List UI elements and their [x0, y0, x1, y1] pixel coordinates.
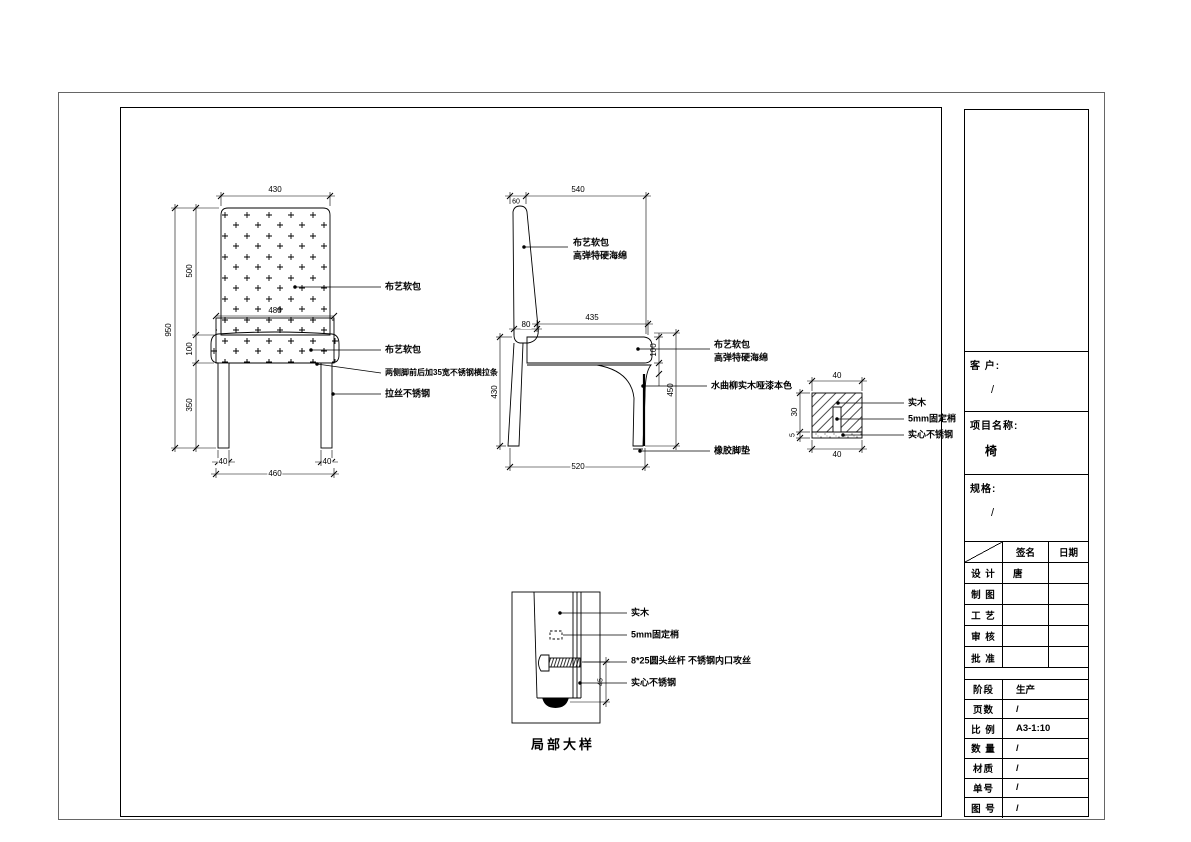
row-draft-date: [1048, 584, 1088, 605]
row-review-sign: [1002, 626, 1048, 647]
quantity-value: /: [1002, 739, 1088, 759]
row-design-label: 设 计: [965, 563, 1002, 584]
label-side-seat-foam: 高弹特硬海绵: [714, 354, 768, 363]
label-front-leg-material: 拉丝不锈钢: [385, 390, 430, 399]
dim-front-base-width: 460: [267, 470, 282, 478]
row-process-label: 工 艺: [965, 605, 1002, 626]
title-block-gap: [965, 667, 1088, 679]
label-side-foot-pad: 橡胶脚垫: [714, 447, 750, 456]
stage-value: 生产: [1002, 680, 1088, 700]
label-detail-steel: 实心不锈钢: [631, 679, 676, 688]
pages-value: /: [1002, 700, 1088, 720]
signature-table-corner: [965, 542, 1002, 563]
dim-side-seat-cushion: 100: [650, 343, 658, 356]
row-review-date: [1048, 626, 1088, 647]
dim-detail-side: 45: [598, 678, 605, 686]
label-front-stretcher-note: 两侧脚前后加35宽不锈钢横拉条: [385, 369, 498, 377]
customer-value: /: [991, 384, 994, 396]
dim-side-top-depth: 540: [571, 186, 584, 194]
drawing-no-label: 图 号: [965, 798, 1002, 818]
row-approve-label: 批 准: [965, 647, 1002, 668]
label-section-pin: 5mm固定梢: [908, 415, 956, 424]
title-block: 客 户: / 项目名称: 椅 规格: / 签名 日期 设 计 唐 制 图 工 艺…: [964, 109, 1089, 817]
label-section-steel: 实心不锈钢: [908, 431, 953, 440]
cad-sheet: 430 950 500 100 350 480 40 40 460 布艺软包 布…: [0, 0, 1191, 842]
spec-value: /: [991, 507, 994, 519]
row-draft-sign: [1002, 584, 1048, 605]
project-value: 椅: [985, 442, 997, 459]
row-design-sign: 唐: [1002, 563, 1048, 584]
row-process-sign: [1002, 605, 1048, 626]
material-value: /: [1002, 759, 1088, 779]
signature-column-header: 签名: [1002, 542, 1048, 563]
label-side-back-upholstery: 布艺软包: [573, 239, 609, 248]
quantity-label: 数 量: [965, 739, 1002, 759]
dim-front-seat-width: 480: [268, 307, 281, 315]
row-review-label: 审 核: [965, 626, 1002, 647]
order-no-value: /: [1002, 779, 1088, 799]
customer-section: 客 户: /: [965, 351, 1088, 411]
leg-detail-drawing: [512, 592, 627, 723]
customer-label: 客 户:: [965, 352, 1088, 372]
dim-front-leg-height: 350: [186, 398, 194, 411]
spec-label: 规格:: [965, 475, 1088, 495]
dim-side-base-depth: 520: [570, 463, 585, 471]
info-table: 阶段 生产 页数 / 比 例 A3-1:10 数 量 / 材质 / 单号 / 图…: [965, 679, 1088, 818]
spec-section: 规格: /: [965, 474, 1088, 541]
label-front-back-upholstery: 布艺软包: [385, 283, 421, 292]
row-approve-sign: [1002, 647, 1048, 668]
label-detail-pin: 5mm固定梢: [631, 631, 679, 640]
front-view-drawing: [171, 192, 381, 478]
label-front-seat-upholstery: 布艺软包: [385, 346, 421, 355]
dim-side-back-top: 60: [511, 199, 521, 206]
label-side-seat-upholstery: 布艺软包: [714, 341, 750, 350]
detail-view-title: 局部大样: [531, 734, 595, 753]
label-detail-wood: 实木: [631, 609, 649, 618]
dim-front-leg-w-left: 40: [218, 458, 229, 466]
row-draft-label: 制 图: [965, 584, 1002, 605]
scale-label: 比 例: [965, 719, 1002, 739]
row-approve-date: [1048, 647, 1088, 668]
dim-front-seat-thickness: 100: [186, 342, 194, 355]
dim-front-overall-height: 950: [165, 323, 173, 336]
signature-table: 签名 日期 设 计 唐 制 图 工 艺 审 核 批 准: [965, 541, 1088, 667]
dim-side-seat-depth: 435: [585, 314, 598, 322]
title-block-empty-cell: [965, 110, 1088, 351]
dim-section-width-top: 40: [833, 372, 842, 380]
date-column-header: 日期: [1048, 542, 1088, 563]
label-detail-screw: 8*25圆头丝杆 不锈钢内口攻丝: [631, 657, 751, 666]
row-design-date: [1048, 563, 1088, 584]
dim-side-back-bottom: 80: [521, 321, 532, 329]
label-section-wood: 实木: [908, 399, 926, 408]
dim-side-underseat-height: 430: [491, 385, 499, 398]
row-process-date: [1048, 605, 1088, 626]
side-view-drawing: [496, 192, 710, 471]
dim-section-plate: 5: [790, 433, 797, 437]
dim-side-seat-height: 450: [667, 383, 675, 396]
order-no-label: 单号: [965, 779, 1002, 799]
dim-section-width-bottom: 40: [833, 451, 842, 459]
scale-value: A3-1:10: [1002, 719, 1088, 739]
project-section: 项目名称: 椅: [965, 411, 1088, 474]
label-side-leg-wood: 水曲柳实木哑漆本色: [711, 382, 792, 391]
dim-front-back-height: 500: [186, 264, 194, 277]
label-side-back-foam: 高弹特硬海绵: [573, 252, 627, 261]
drawing-no-value: /: [1002, 798, 1088, 818]
stage-label: 阶段: [965, 680, 1002, 700]
dim-front-leg-w-right: 40: [322, 458, 333, 466]
dim-section-height: 30: [791, 408, 799, 417]
dim-front-top-width: 430: [268, 186, 281, 194]
section-detail-drawing: [796, 377, 904, 453]
project-label: 项目名称:: [965, 412, 1088, 432]
material-label: 材质: [965, 759, 1002, 779]
pages-label: 页数: [965, 700, 1002, 720]
